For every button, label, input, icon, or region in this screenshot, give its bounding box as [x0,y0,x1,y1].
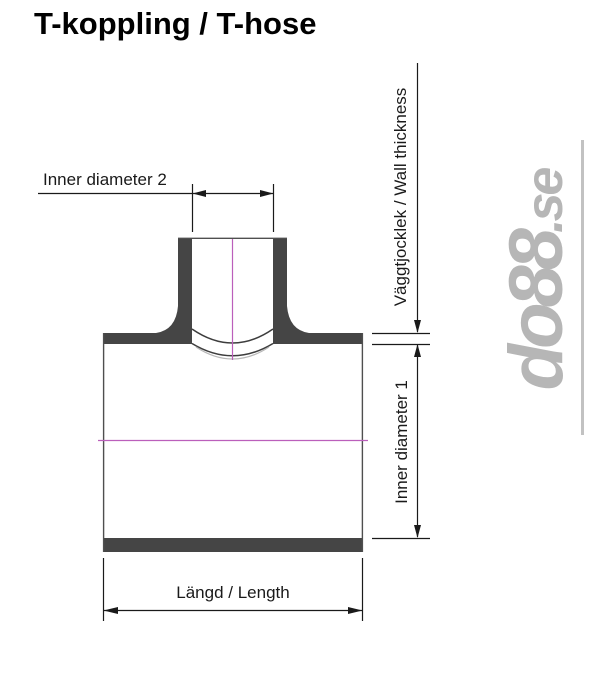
label-wall-thickness: Väggtjocklek / Wall thickness [391,57,413,337]
branch-right-wall [273,239,363,344]
bottom-wall [103,538,363,552]
label-inner-diameter-1: Inner diameter 1 [392,362,414,522]
label-inner-diameter-2: Inner diameter 2 [43,170,167,190]
id1-arrow-up [414,344,421,357]
id2-arrow-left [193,190,207,197]
id1-arrow-down [414,525,421,538]
length-arrow-left [104,607,119,614]
label-length: Längd / Length [103,583,363,603]
id2-arrow-right [260,190,274,197]
watermark-underline [581,140,584,435]
wt-arrow-down [414,320,421,333]
drawing-canvas: T-koppling / T-hose [0,0,600,682]
t-fitting-diagram [0,0,600,682]
branch-left-wall [103,239,192,344]
dimension-inner-diameter-2 [38,184,274,232]
length-arrow-right [348,607,363,614]
